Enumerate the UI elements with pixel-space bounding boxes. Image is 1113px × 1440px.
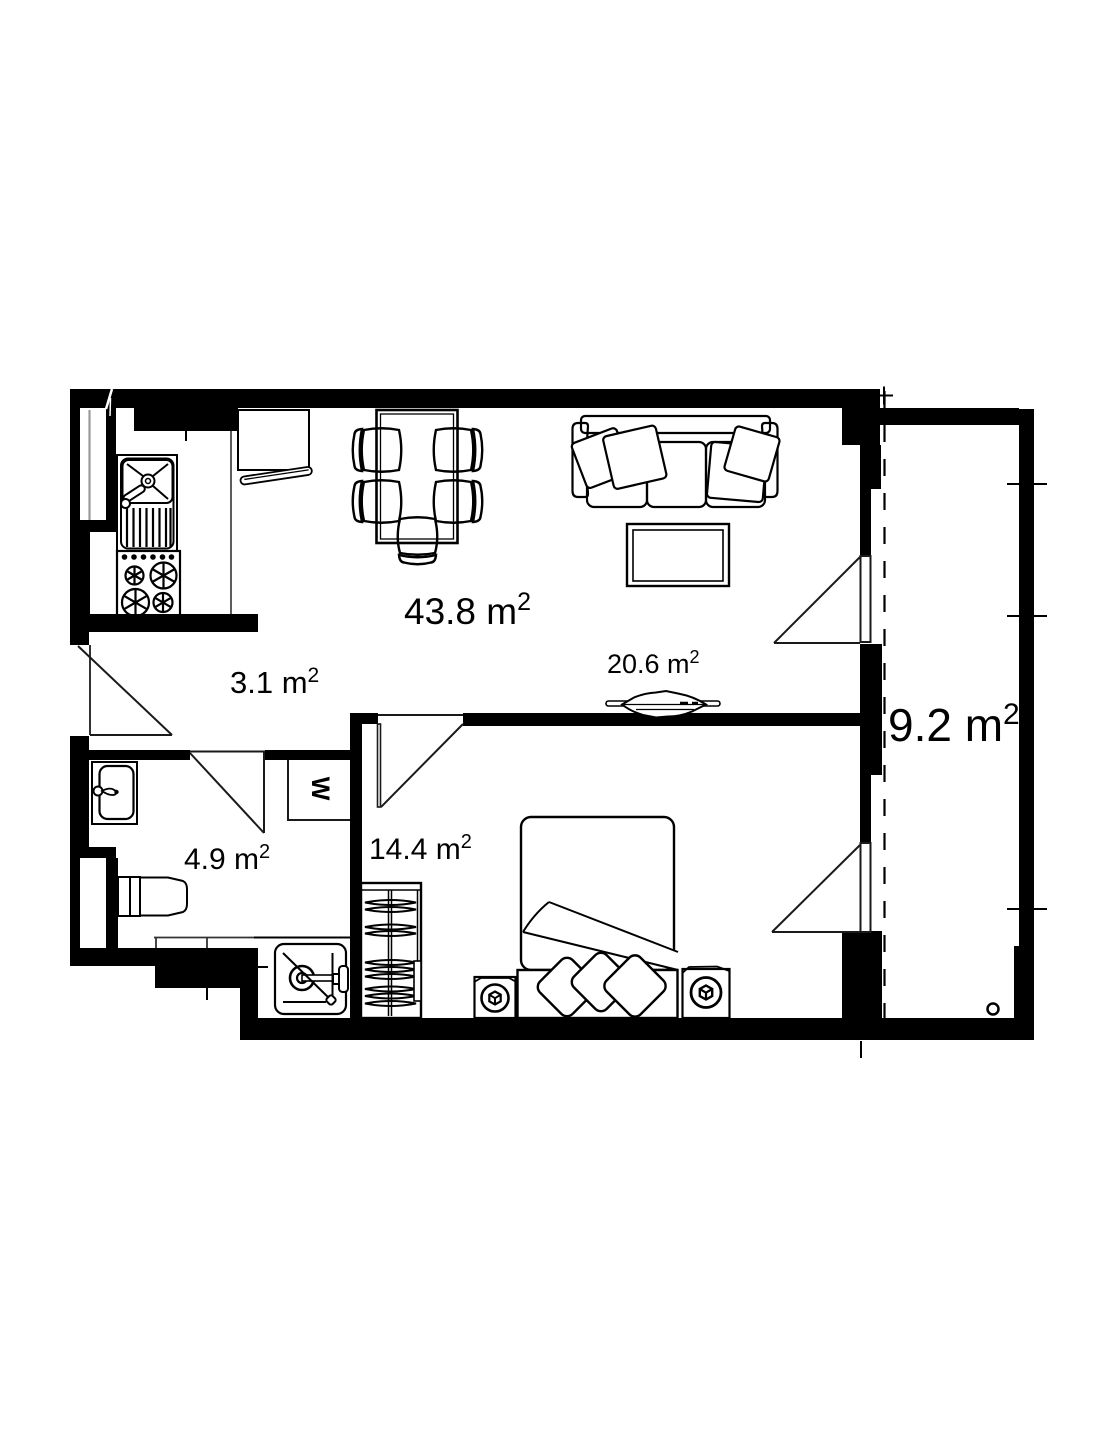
svg-text:43.8 m2: 43.8 m2: [404, 588, 531, 632]
svg-text:20.6 m2: 20.6 m2: [607, 647, 700, 679]
svg-text:14.4 m2: 14.4 m2: [369, 831, 472, 866]
svg-text:4.9 m2: 4.9 m2: [184, 841, 270, 876]
svg-text:9.2 m2: 9.2 m2: [888, 698, 1020, 751]
svg-text:3.1 m2: 3.1 m2: [230, 664, 319, 700]
svg-text:W: W: [306, 777, 334, 801]
